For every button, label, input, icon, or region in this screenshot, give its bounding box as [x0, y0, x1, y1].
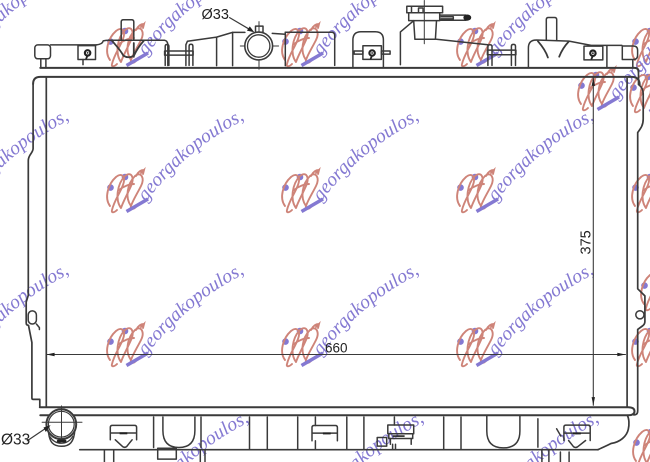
svg-text:375: 375 [579, 230, 595, 254]
svg-text:Ø33: Ø33 [202, 7, 229, 23]
svg-text:660: 660 [325, 341, 348, 356]
svg-text:Ø33: Ø33 [1, 432, 30, 449]
